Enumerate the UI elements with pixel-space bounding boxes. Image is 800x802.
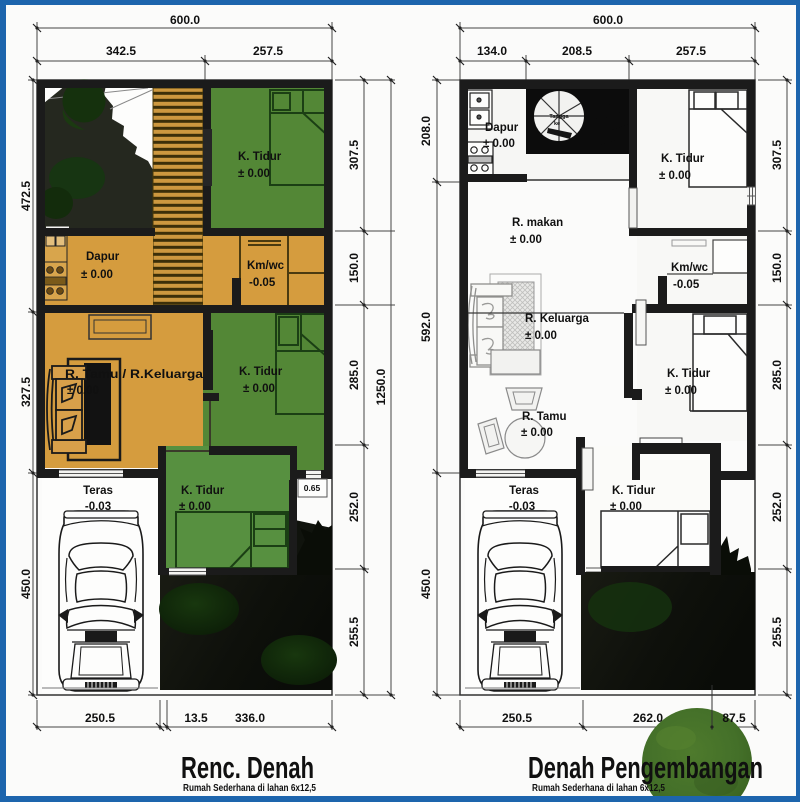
svg-text:450.0: 450.0 (419, 569, 433, 599)
svg-text:Rumah Sederhana di lahan 6x12,: Rumah Sederhana di lahan 6x12,5 (532, 783, 665, 794)
svg-text:R. makan: R. makan (512, 217, 563, 229)
svg-text:327.5: 327.5 (19, 377, 33, 407)
svg-text:262.0: 262.0 (633, 711, 663, 725)
svg-text:87.5: 87.5 (722, 711, 746, 725)
svg-text:± 0.00: ± 0.00 (521, 427, 553, 439)
svg-text:± 0.00: ± 0.00 (525, 330, 557, 342)
svg-text:Denah Pengembangan: Denah Pengembangan (528, 750, 763, 785)
svg-text:450.0: 450.0 (19, 569, 33, 599)
svg-text:592.0: 592.0 (419, 312, 433, 342)
svg-text:ke: ke (554, 121, 560, 127)
svg-text:K. Tidur: K. Tidur (238, 151, 282, 163)
svg-text:Teras: Teras (509, 485, 539, 497)
svg-text:342.5: 342.5 (106, 44, 136, 58)
svg-text:Rumah Sederhana di lahan 6x12,: Rumah Sederhana di lahan 6x12,5 (183, 783, 316, 794)
svg-text:± 0.00: ± 0.00 (610, 501, 642, 513)
svg-text:208.0: 208.0 (419, 116, 433, 146)
svg-text:307.5: 307.5 (347, 140, 361, 170)
svg-text:K. Tidur: K. Tidur (667, 368, 711, 380)
svg-text:285.0: 285.0 (770, 360, 784, 390)
svg-text:Km/wc: Km/wc (671, 262, 709, 274)
svg-text:± 0.00: ± 0.00 (665, 385, 697, 397)
svg-text:13.5: 13.5 (184, 711, 208, 725)
svg-text:150.0: 150.0 (770, 253, 784, 283)
svg-text:± 0.00: ± 0.00 (659, 170, 691, 182)
svg-text:± 0.00: ± 0.00 (243, 383, 275, 395)
svg-text:± 0.00: ± 0.00 (238, 168, 270, 180)
svg-text:K. Tidur: K. Tidur (181, 485, 225, 497)
svg-text:R. Tamu / R.Keluarga: R. Tamu / R.Keluarga (65, 369, 204, 381)
svg-text:Tangga: Tangga (549, 114, 569, 120)
svg-text:600.0: 600.0 (170, 13, 200, 27)
svg-text:± 0.00: ± 0.00 (81, 269, 113, 281)
svg-text:255.5: 255.5 (770, 617, 784, 647)
svg-text:252.0: 252.0 (347, 492, 361, 522)
svg-text:255.5: 255.5 (347, 617, 361, 647)
svg-text:Dapur: Dapur (485, 122, 519, 134)
svg-text:150.0: 150.0 (347, 253, 361, 283)
svg-text:Km/wc: Km/wc (247, 260, 285, 272)
svg-text:250.5: 250.5 (85, 711, 115, 725)
svg-text:K. Tidur: K. Tidur (612, 485, 656, 497)
svg-text:472.5: 472.5 (19, 181, 33, 211)
svg-text:252.0: 252.0 (770, 492, 784, 522)
svg-text:250.5: 250.5 (502, 711, 532, 725)
svg-text:Renc. Denah: Renc. Denah (181, 750, 314, 785)
svg-text:208.5: 208.5 (562, 44, 592, 58)
svg-text:-0.05: -0.05 (249, 277, 276, 289)
svg-text:R. Keluarga: R. Keluarga (525, 313, 590, 325)
svg-text:K. Tidur: K. Tidur (239, 366, 283, 378)
svg-text:Teras: Teras (83, 485, 113, 497)
svg-text:257.5: 257.5 (676, 44, 706, 58)
svg-text:257.5: 257.5 (253, 44, 283, 58)
svg-text:336.0: 336.0 (235, 711, 265, 725)
svg-text:Dapur: Dapur (86, 251, 120, 263)
svg-text:K. Tidur: K. Tidur (661, 153, 705, 165)
svg-text:0.65: 0.65 (304, 483, 321, 493)
svg-text:600.0: 600.0 (593, 13, 623, 27)
svg-text:R. Tamu: R. Tamu (522, 411, 567, 423)
svg-text:285.0: 285.0 (347, 360, 361, 390)
svg-text:± 0.00: ± 0.00 (483, 138, 515, 150)
svg-text:134.0: 134.0 (477, 44, 507, 58)
svg-text:± 0.00: ± 0.00 (510, 234, 542, 246)
svg-text:± 0.00: ± 0.00 (67, 385, 99, 397)
svg-text:1250.0: 1250.0 (374, 368, 388, 405)
svg-text:-0.05: -0.05 (673, 279, 700, 291)
svg-text:± 0.00: ± 0.00 (179, 501, 211, 513)
svg-text:307.5: 307.5 (770, 140, 784, 170)
